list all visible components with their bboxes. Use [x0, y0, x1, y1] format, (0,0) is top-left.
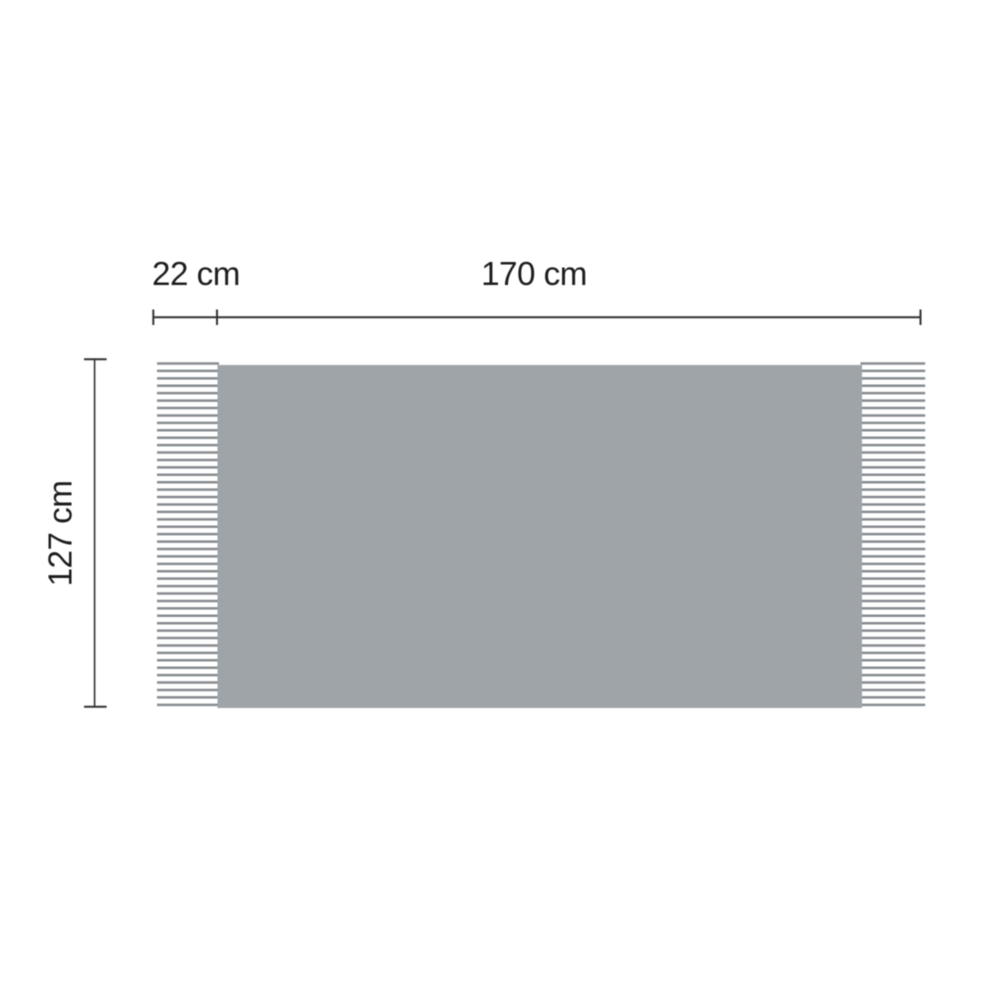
svg-text:170 cm: 170 cm — [481, 256, 587, 293]
svg-text:127 cm: 127 cm — [43, 481, 80, 587]
svg-text:22 cm: 22 cm — [152, 256, 240, 293]
